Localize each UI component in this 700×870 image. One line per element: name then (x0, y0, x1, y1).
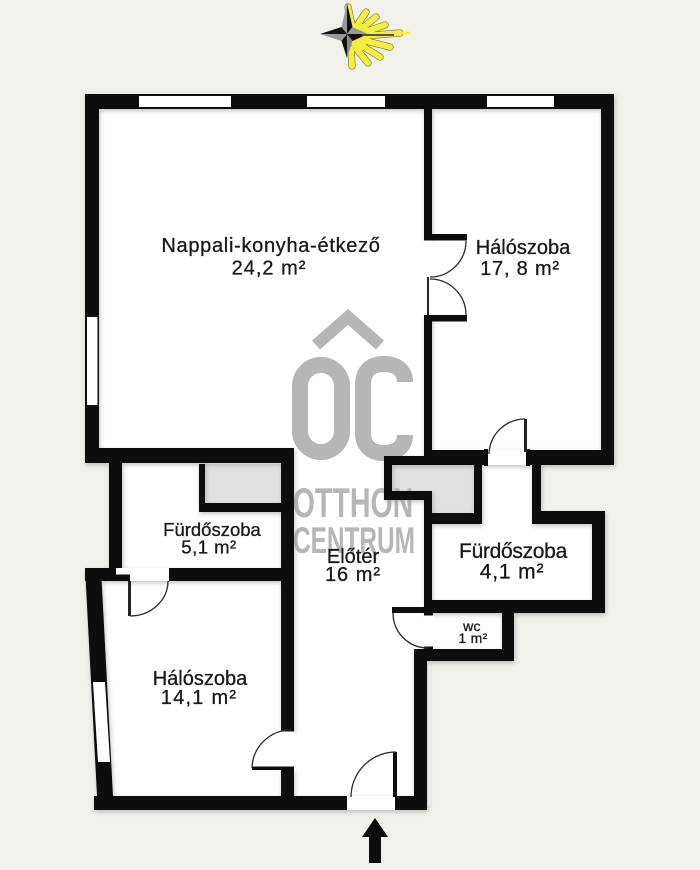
svg-text:Hálószoba: Hálószoba (476, 237, 571, 259)
svg-text:5,1 m²: 5,1 m² (181, 537, 236, 558)
svg-text:1 m²: 1 m² (458, 630, 487, 646)
svg-text:24,2 m²: 24,2 m² (232, 258, 307, 280)
svg-text:14,1 m²: 14,1 m² (161, 687, 238, 709)
svg-text:16 m²: 16 m² (325, 564, 381, 586)
svg-text:4,1 m²: 4,1 m² (480, 561, 545, 584)
svg-text:17, 8 m²: 17, 8 m² (480, 258, 560, 280)
svg-text:Nappali-konyha-étkező: Nappali-konyha-étkező (161, 235, 380, 257)
